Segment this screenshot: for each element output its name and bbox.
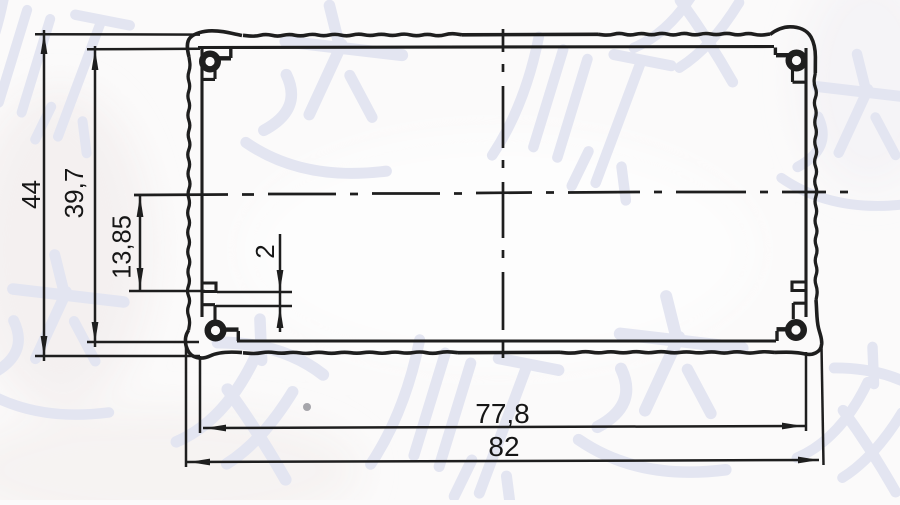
svg-text:44: 44 xyxy=(16,180,46,209)
svg-text:39,7: 39,7 xyxy=(59,168,89,219)
svg-text:82: 82 xyxy=(488,431,519,462)
svg-text:13,85: 13,85 xyxy=(109,215,137,279)
svg-text:77,8: 77,8 xyxy=(475,398,530,429)
svg-text:2: 2 xyxy=(250,244,280,258)
